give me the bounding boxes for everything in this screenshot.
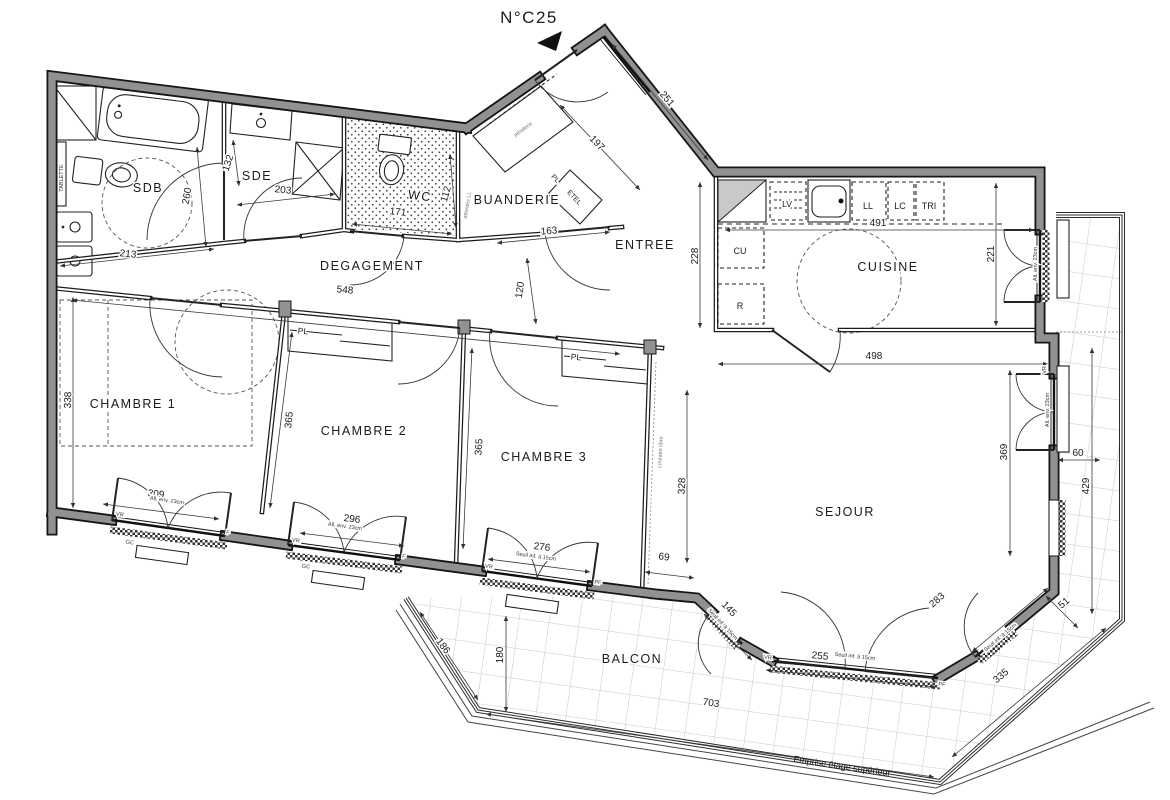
dim-228: 228 — [690, 247, 701, 264]
dim-221: 221 — [986, 245, 997, 262]
room-label-entree: ENTREE — [615, 238, 675, 252]
dim-69: 69 — [658, 551, 671, 563]
kitchen-sink — [808, 180, 850, 222]
wall-stub — [644, 340, 656, 354]
double-washbasin — [56, 212, 92, 276]
room-label-buanderie: BUANDERIE — [474, 193, 560, 207]
bed-outline — [60, 300, 252, 446]
dim-145: 145 — [719, 599, 739, 619]
room-label-degagement: DEGAGEMENT — [320, 259, 424, 273]
dim-365a: 365 — [283, 411, 296, 429]
dim-163: 163 — [540, 225, 558, 237]
dim-120: 120 — [514, 281, 527, 299]
shower — [292, 142, 344, 200]
seuil-label: Seuil inf. à 15cm — [834, 652, 875, 662]
appliance-label-lv: LV — [782, 199, 792, 209]
room-label-sdb: SDB — [133, 181, 163, 195]
tablette-label: TABLETTE — [59, 164, 65, 192]
vr-label: VR — [116, 511, 124, 518]
toilet-sdb — [72, 156, 139, 190]
dim-338: 338 — [63, 391, 75, 408]
dim-328: 328 — [677, 477, 689, 495]
dim-429: 429 — [1081, 477, 1092, 494]
appliance-label-lc: LC — [894, 201, 906, 211]
dim-283: 283 — [927, 590, 947, 610]
dim-60: 60 — [1072, 448, 1084, 459]
dim-548: 548 — [336, 284, 354, 296]
dim-171: 171 — [389, 206, 407, 219]
floor-plan: N°C25 SDB SDE WC BUANDERIE DEGAGEMENT EN… — [0, 0, 1170, 800]
turning-circle-cuisine — [797, 229, 901, 333]
lineaire-libre-label: Linéaire libre — [657, 436, 665, 468]
vr-label: VR — [292, 537, 300, 544]
room-label-chambre1: CHAMBRE 1 — [90, 397, 176, 411]
plan-title: N°C25 — [500, 8, 558, 27]
entry-door — [535, 50, 608, 102]
wall-stub — [279, 301, 291, 317]
dim-498: 498 — [866, 351, 883, 362]
pl-label-chambre3: PL — [570, 352, 582, 363]
seuil-label: Seuil inf. à 15cm — [515, 551, 557, 563]
room-label-sejour: SEJOUR — [815, 505, 875, 519]
gc-label: GC — [301, 563, 310, 570]
vr-label: VR — [764, 655, 772, 662]
room-label-cuisine: CUISINE — [857, 260, 918, 274]
attentes-ll-label: attentes LL — [463, 191, 474, 219]
appliance-label-ll: LL — [863, 201, 873, 211]
pl-label-chambre2: PL — [297, 326, 309, 337]
appliance-label-cu: CU — [734, 246, 747, 256]
floor-plan-page: N°C25 SDB SDE WC BUANDERIE DEGAGEMENT EN… — [0, 0, 1170, 800]
allege-label: All. env. 23cm — [1033, 247, 1039, 282]
shutter-boxes — [135, 220, 1069, 614]
fixed-window — [1049, 500, 1059, 556]
room-label-chambre2: CHAMBRE 2 — [321, 424, 407, 438]
room-label-sde: SDE — [242, 169, 272, 183]
dim-180: 180 — [495, 646, 506, 663]
dim-255: 255 — [811, 650, 829, 663]
allege-label: All. env. 23cm — [1045, 393, 1051, 428]
room-label-wc: WC — [407, 188, 432, 205]
dim-276: 276 — [533, 541, 551, 554]
room-label-chambre3: CHAMBRE 3 — [501, 450, 587, 464]
vr-label: VR — [1042, 366, 1048, 374]
room-label-balcon: BALCON — [602, 652, 662, 666]
allege-label: All. env. 23cm — [150, 496, 185, 507]
pf-label: PF — [938, 682, 946, 689]
vr-label: VR — [485, 563, 493, 570]
appliance-label-r: R — [737, 301, 744, 311]
entry-arrow-icon — [537, 31, 562, 51]
dim-369: 369 — [999, 443, 1010, 460]
dim-491: 491 — [870, 218, 887, 229]
balcony-floor-tiles — [406, 215, 1122, 782]
gc-label: GC — [125, 539, 134, 546]
dim-213: 213 — [119, 248, 137, 261]
dim-203: 203 — [274, 184, 292, 197]
dim-365b: 365 — [473, 438, 485, 456]
penderie-label: penderie — [513, 121, 534, 138]
appliance-label-tri: TRI — [922, 201, 937, 211]
etel-label: ETEL — [565, 189, 582, 207]
